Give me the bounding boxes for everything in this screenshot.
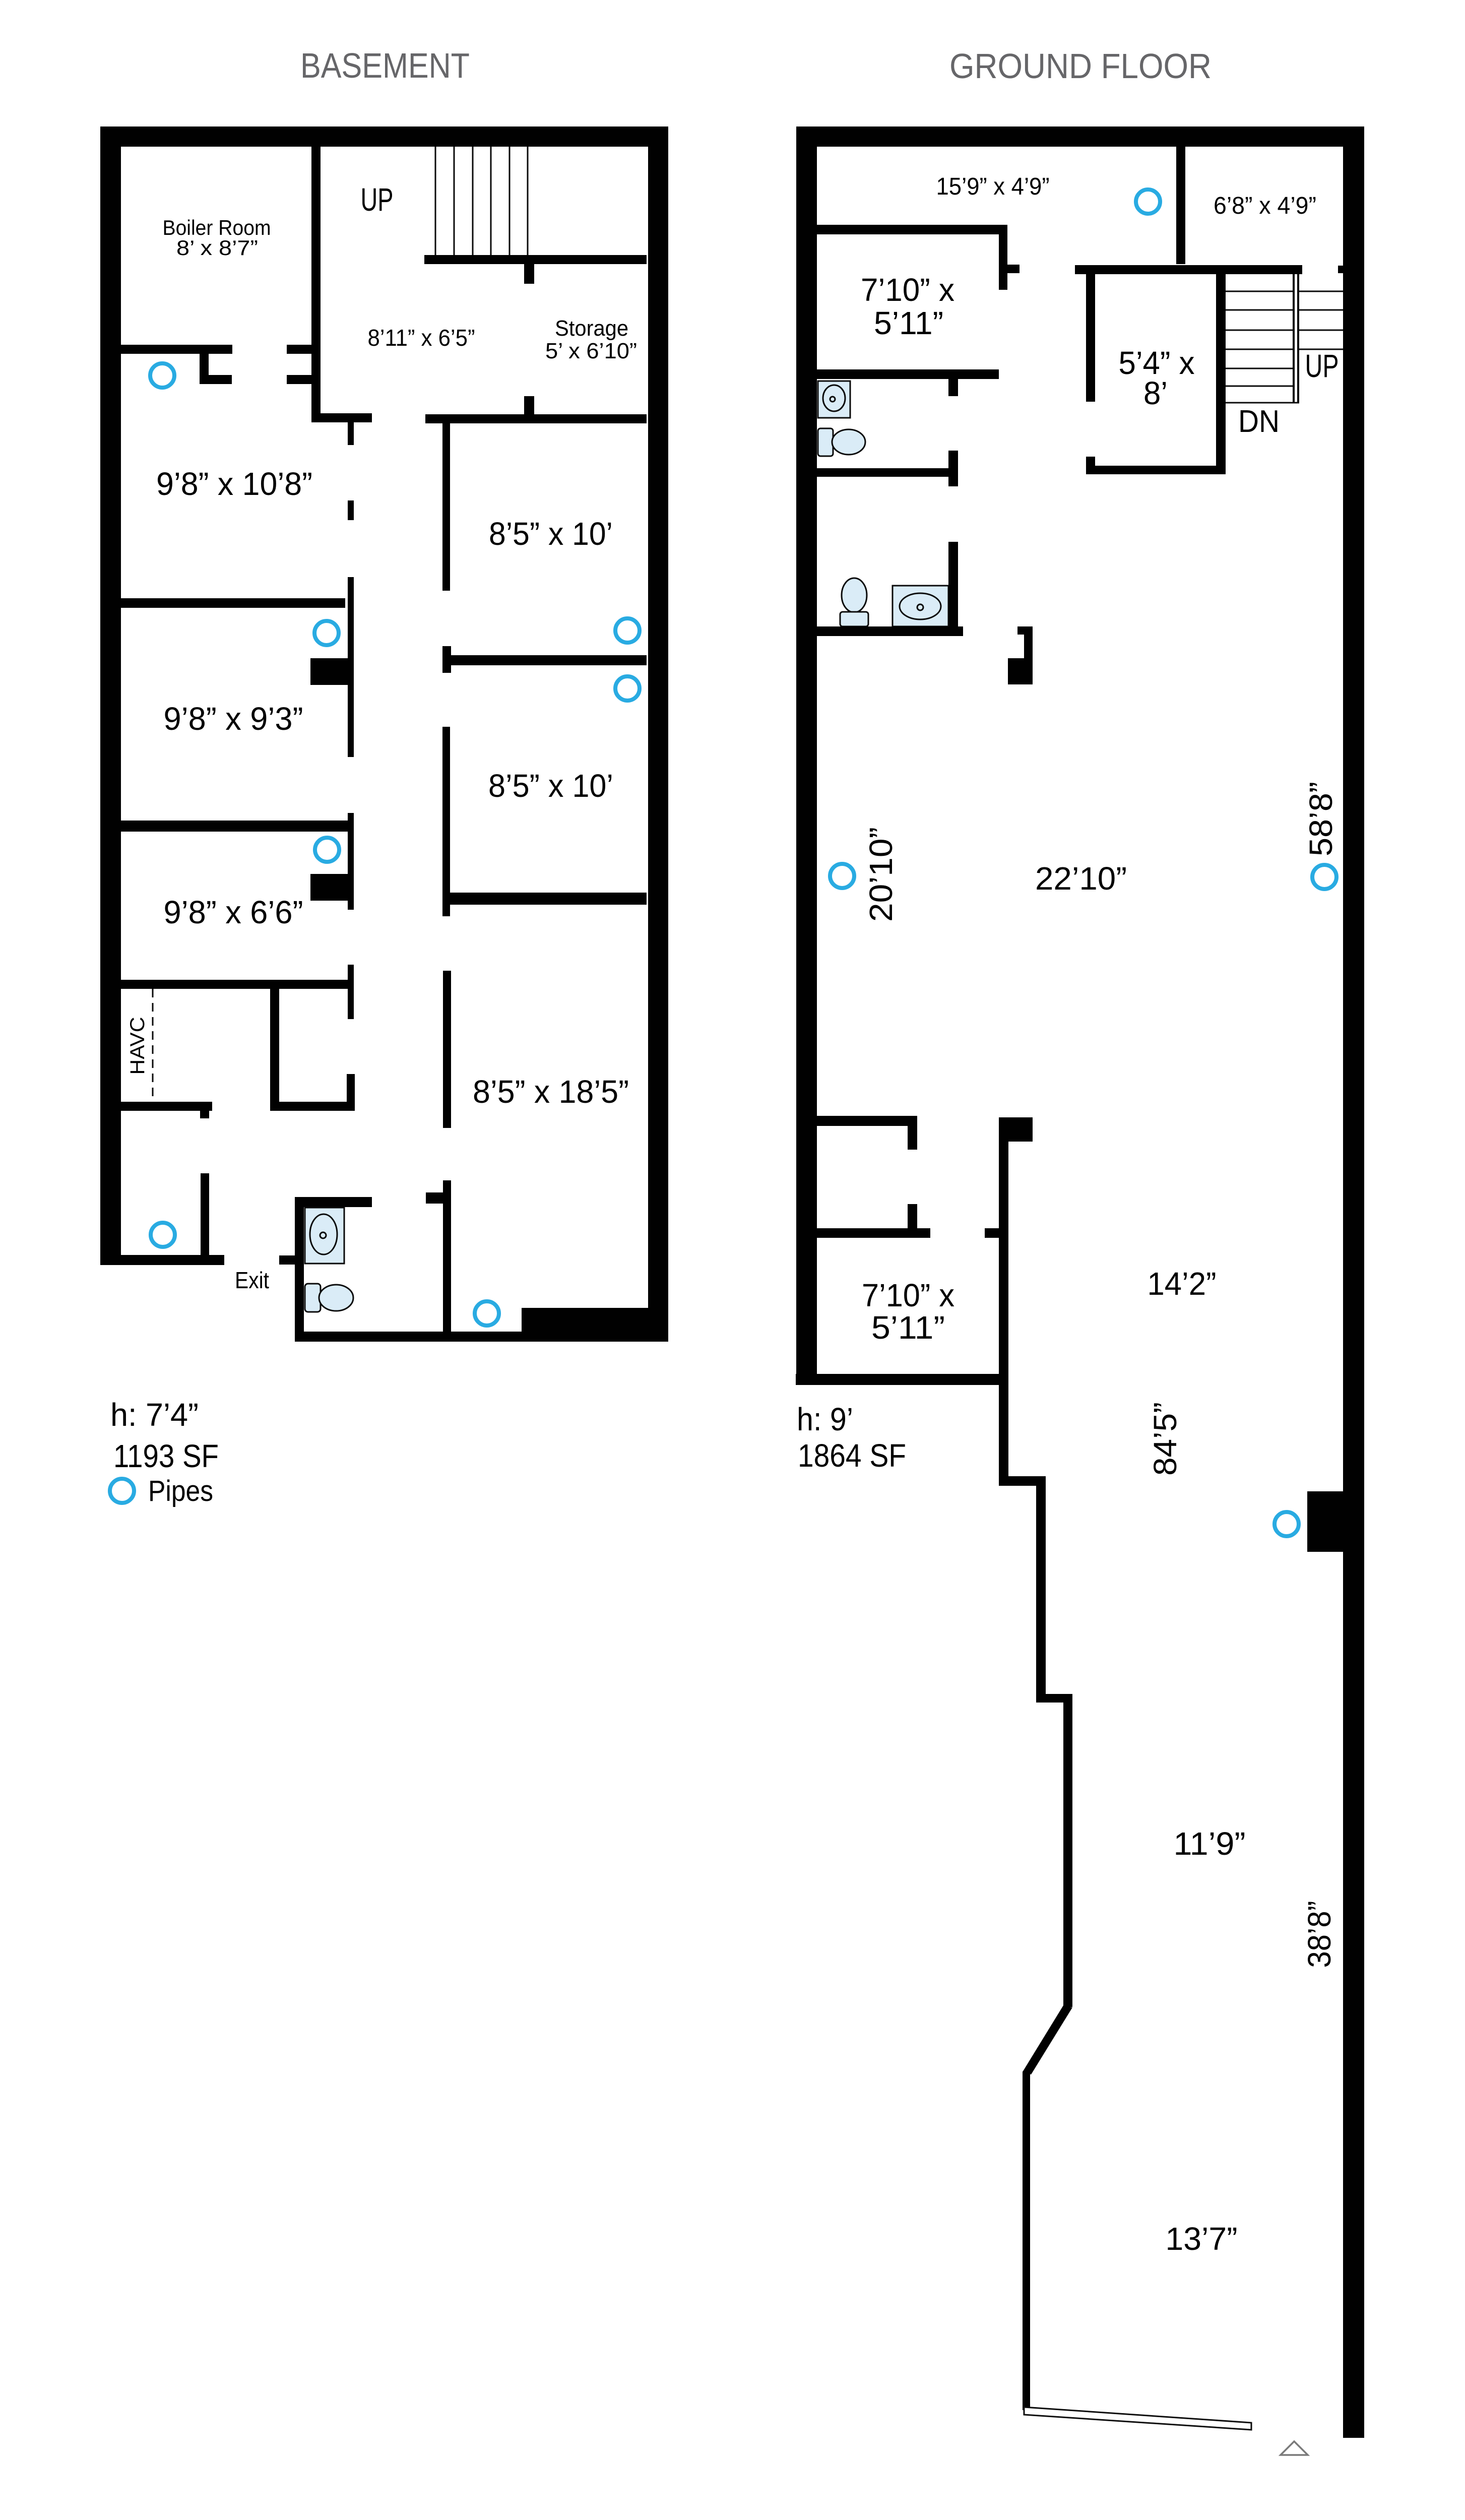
svg-text:BASEMENT: BASEMENT — [300, 46, 470, 85]
svg-text:7’10” x: 7’10” x — [862, 1277, 954, 1313]
svg-text:1864 SF: 1864 SF — [798, 1437, 906, 1474]
svg-text:8’: 8’ — [1143, 375, 1168, 411]
svg-text:84’5”: 84’5” — [1147, 1402, 1183, 1476]
svg-text:13’7”: 13’7” — [1166, 2221, 1238, 2257]
svg-text:15’9” x 4’9”: 15’9” x 4’9” — [936, 173, 1050, 200]
svg-text:UP: UP — [361, 181, 394, 218]
svg-text:UP: UP — [1305, 348, 1339, 384]
svg-text:6’8” x 4’9”: 6’8” x 4’9” — [1214, 193, 1316, 219]
svg-text:GROUND FLOOR: GROUND FLOOR — [949, 46, 1212, 86]
svg-text:h: 7’4”: h: 7’4” — [110, 1397, 199, 1433]
svg-text:5’ x 6’10”: 5’ x 6’10” — [545, 339, 637, 363]
svg-text:11’9”: 11’9” — [1174, 1825, 1246, 1862]
svg-text:58’8”: 58’8” — [1303, 782, 1339, 856]
svg-text:7’10” x: 7’10” x — [861, 272, 954, 308]
svg-text:1193 SF: 1193 SF — [113, 1438, 219, 1474]
svg-text:5’11”: 5’11” — [874, 305, 943, 341]
svg-text:Pipes: Pipes — [148, 1475, 213, 1507]
svg-text:38’8”: 38’8” — [1301, 1901, 1337, 1968]
svg-text:DN: DN — [1238, 404, 1280, 439]
svg-text:8’5” x 10’: 8’5” x 10’ — [488, 768, 613, 804]
svg-text:9’8” x 6’6”: 9’8” x 6’6” — [164, 894, 303, 930]
svg-text:20’10”: 20’10” — [863, 827, 899, 922]
svg-text:8’5” x 10’: 8’5” x 10’ — [489, 516, 613, 552]
svg-text:9’8” x 10’8”: 9’8” x 10’8” — [156, 466, 312, 502]
svg-text:8’5” x 18’5”: 8’5” x 18’5” — [473, 1074, 629, 1110]
svg-text:8’ x 8’7”: 8’ x 8’7” — [176, 236, 258, 260]
svg-text:Storage: Storage — [555, 316, 628, 341]
svg-text:Exit: Exit — [235, 1267, 269, 1293]
svg-text:5’11”: 5’11” — [871, 1309, 945, 1346]
svg-text:h: 9’: h: 9’ — [797, 1401, 853, 1437]
svg-text:14’2”: 14’2” — [1148, 1266, 1217, 1302]
svg-text:22’10”: 22’10” — [1035, 860, 1127, 897]
svg-text:HAVC: HAVC — [126, 1017, 149, 1075]
svg-text:8’11” x 6’5”: 8’11” x 6’5” — [368, 325, 475, 351]
svg-text:9’8” x 9’3”: 9’8” x 9’3” — [164, 701, 303, 737]
